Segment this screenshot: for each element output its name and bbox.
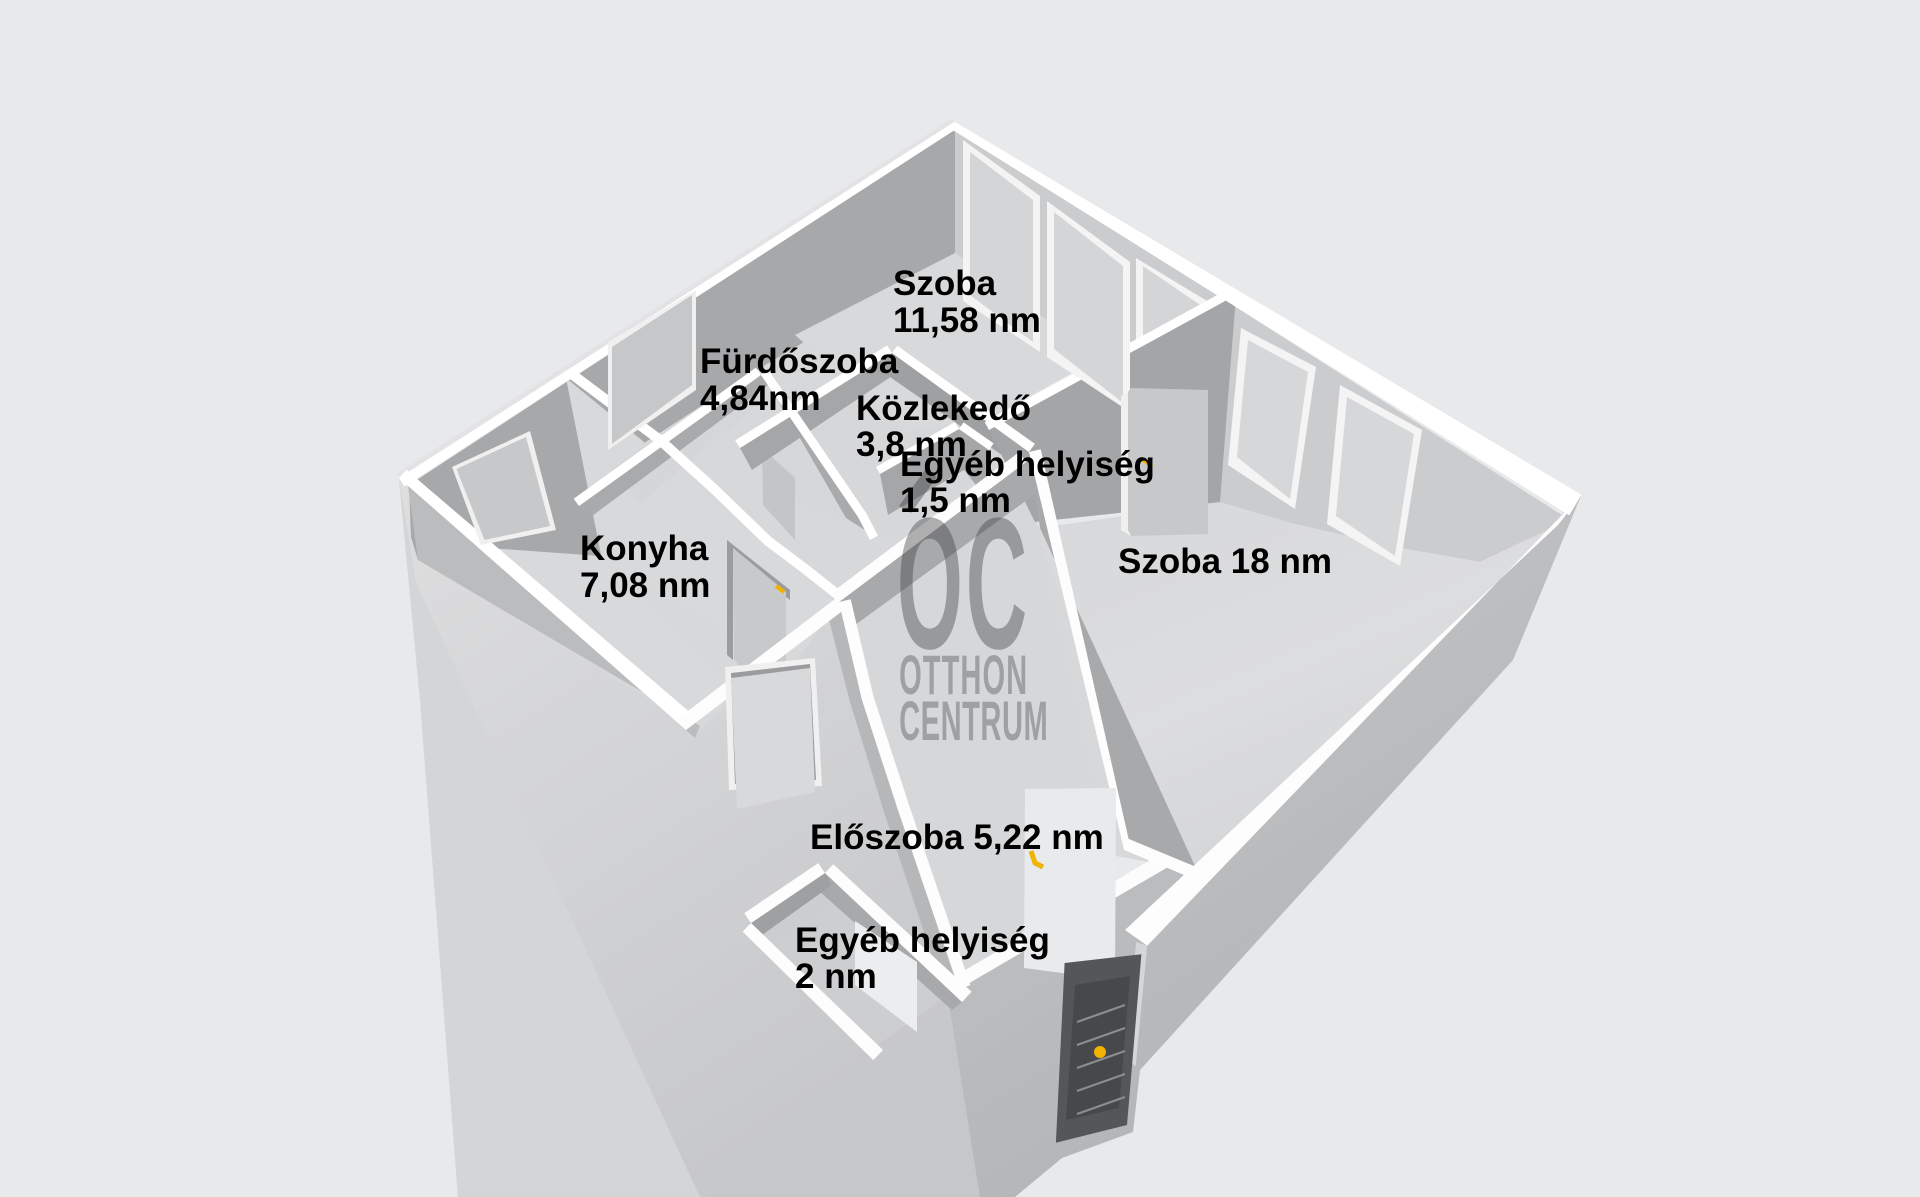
svg-text:Fürdőszoba: Fürdőszoba xyxy=(700,342,899,381)
svg-text:Szoba 18 nm: Szoba 18 nm xyxy=(1118,542,1332,581)
svg-text:4,84nm: 4,84nm xyxy=(700,379,821,418)
svg-text:Egyéb helyiség: Egyéb helyiség xyxy=(900,445,1155,484)
svg-text:Szoba: Szoba xyxy=(893,264,997,303)
svg-text:1,5 nm: 1,5 nm xyxy=(900,481,1011,520)
svg-text:Egyéb helyiség: Egyéb helyiség xyxy=(795,921,1050,960)
svg-text:Közlekedő: Közlekedő xyxy=(856,389,1031,428)
svg-text:Konyha: Konyha xyxy=(580,529,709,568)
svg-text:Előszoba 5,22 nm: Előszoba 5,22 nm xyxy=(810,818,1104,857)
svg-text:CENTRUM: CENTRUM xyxy=(899,691,1048,752)
svg-text:11,58 nm: 11,58 nm xyxy=(893,301,1041,340)
svg-text:2 nm: 2 nm xyxy=(795,957,877,996)
svg-text:7,08 nm: 7,08 nm xyxy=(580,566,710,605)
